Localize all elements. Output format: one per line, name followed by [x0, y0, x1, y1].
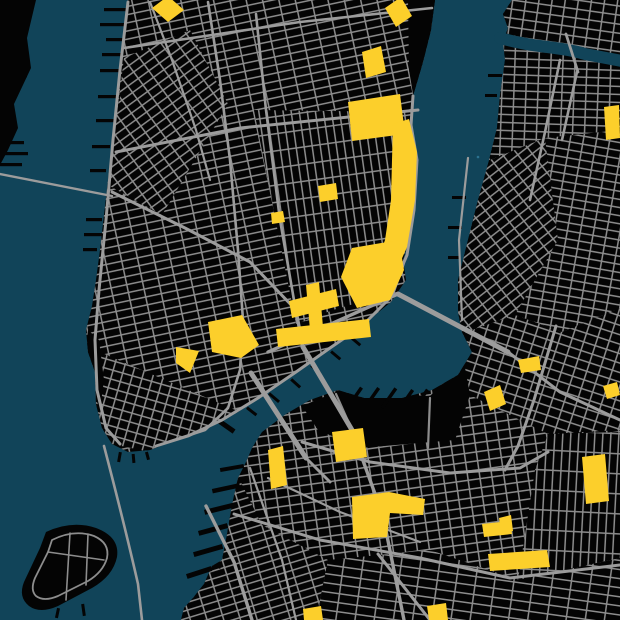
park-bottom-east: [427, 603, 448, 620]
river-speck: [477, 156, 480, 159]
park-commodore-barry: [332, 428, 367, 462]
park-little-park: [271, 211, 285, 224]
map-canvas: [0, 0, 620, 620]
map-viewport[interactable]: [0, 0, 620, 620]
park-first-park: [318, 183, 338, 202]
park-pratt-field: [582, 454, 609, 504]
park-cooper-edge: [604, 105, 620, 140]
